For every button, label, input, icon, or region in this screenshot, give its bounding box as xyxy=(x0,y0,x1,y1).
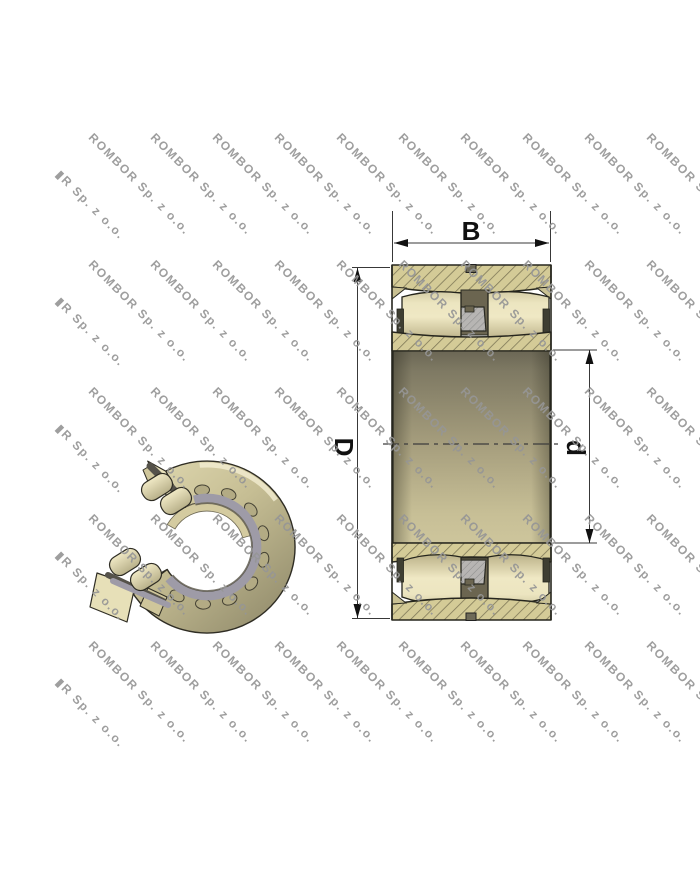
watermark-text: ROMBOR Sp. z o.o. xyxy=(149,512,255,618)
watermark-text: ROMBOR Sp. z o.o. xyxy=(583,131,689,237)
watermark-text: ROMBOR Sp. z o.o. xyxy=(397,639,503,745)
watermark-text: ROMBOR Sp. z o.o. xyxy=(149,258,255,364)
watermark-text: ROMBOR Sp. z o.o. xyxy=(459,385,565,491)
watermark-text: ROMBOR Sp. z o.o. xyxy=(335,131,441,237)
watermark-text: ROMBOR Sp. z o.o. xyxy=(397,258,503,364)
watermark-text: ROMBOR Sp. z o.o. xyxy=(211,512,317,618)
watermark-text: ROMBOR Sp. z o.o. xyxy=(335,258,441,364)
watermark-text-partial: ▮R Sp. z o.o. xyxy=(54,422,128,496)
watermark-text: ROMBOR Sp. z o.o. xyxy=(521,512,627,618)
watermark-text: ROMBOR Sp. z o.o. xyxy=(521,131,627,237)
watermark-text: ROMBOR Sp. z o.o. xyxy=(459,131,565,237)
watermark-text: ROMBOR Sp. z o.o. xyxy=(211,639,317,745)
watermark-text: ROMBOR Sp. z o.o. xyxy=(149,385,255,491)
watermark-text: ROMBOR Sp. z o.o. xyxy=(273,385,379,491)
watermark-text: ROMBOR Sp. z o.o. xyxy=(211,258,317,364)
watermark-text: ROMBOR Sp. z o.o. xyxy=(397,512,503,618)
watermark-text: ROMBOR Sp. z o.o. xyxy=(397,385,503,491)
bearing-product-drawing: B D d xyxy=(0,0,700,869)
watermark-text-partial: ▮R Sp. z o.o. xyxy=(54,676,128,750)
watermark-text: ROMBOR Sp. z o.o. xyxy=(583,512,689,618)
watermark-text-partial: ▮R Sp. z o.o. xyxy=(54,295,128,369)
watermark-text: ROMBOR Sp. z o.o. xyxy=(397,131,503,237)
watermark-text: ROMBOR Sp. z o.o. xyxy=(459,639,565,745)
watermark-text: ROMBOR Sp. z o.o. xyxy=(521,385,627,491)
watermark-text: ROMBOR Sp. z o.o. xyxy=(211,131,317,237)
watermark-text: ROMBOR Sp. z o.o. xyxy=(273,258,379,364)
watermark-text: ROMBOR Sp. z o.o. xyxy=(583,639,689,745)
watermark-text: ROMBOR Sp. z o.o. xyxy=(149,639,255,745)
watermark-text: ROMBOR Sp. z o.o. xyxy=(459,258,565,364)
watermark-text-partial: ▮R Sp. z o.o. xyxy=(54,549,128,623)
watermark-text: ROMBOR Sp. z o.o. xyxy=(335,385,441,491)
watermark-text: ROMBOR Sp. z o.o. xyxy=(273,131,379,237)
watermark-layer: ▮R Sp. z o.o.ROMBOR Sp. z o.o.ROMBOR Sp.… xyxy=(0,0,700,869)
watermark-text: ROMBOR Sp. z o.o. xyxy=(335,639,441,745)
watermark-text: ROMBOR Sp. z o.o. xyxy=(211,385,317,491)
watermark-text: ROMBOR Sp. z o.o. xyxy=(273,639,379,745)
watermark-text: ROMBOR Sp. z o.o. xyxy=(521,639,627,745)
watermark-text: ROMBOR Sp. z o.o. xyxy=(273,512,379,618)
watermark-text: ROMBOR Sp. z o.o. xyxy=(521,258,627,364)
watermark-text: ROMBOR Sp. z o.o. xyxy=(149,131,255,237)
watermark-text: ROMBOR Sp. z o.o. xyxy=(583,385,689,491)
watermark-text: ROMBOR Sp. z o.o. xyxy=(335,512,441,618)
watermark-text: ROMBOR Sp. z o.o. xyxy=(583,258,689,364)
watermark-text-partial: ▮R Sp. z o.o. xyxy=(54,168,128,242)
watermark-text: ROMBOR Sp. z o.o. xyxy=(459,512,565,618)
